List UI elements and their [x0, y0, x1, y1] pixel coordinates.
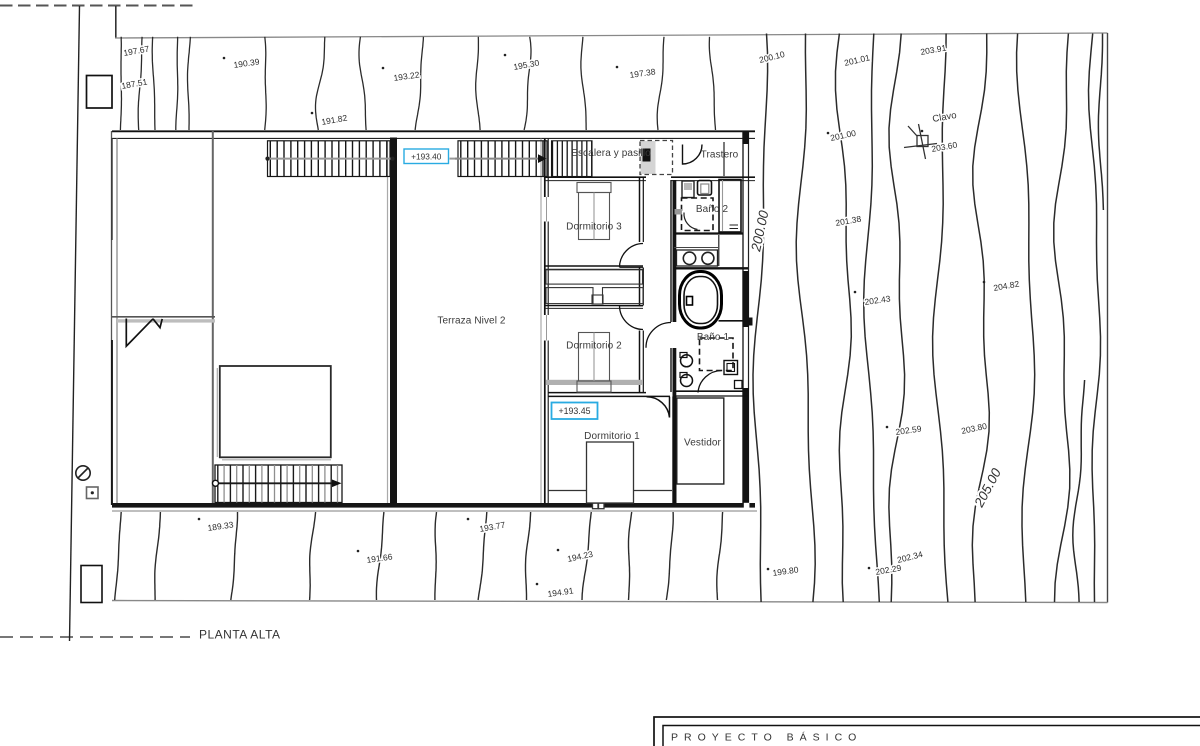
svg-text:Dormitorio 2: Dormitorio 2 [566, 341, 622, 352]
svg-text:PROYECTO BÁSICO: PROYECTO BÁSICO [671, 731, 862, 744]
svg-text:Trastero: Trastero [701, 150, 739, 161]
svg-text:Baño 1: Baño 1 [697, 332, 730, 343]
svg-text:+193.45: +193.45 [558, 406, 590, 416]
svg-text:Escalera y pasillo: Escalera y pasillo [571, 148, 651, 159]
svg-text:Dormitorio 1: Dormitorio 1 [584, 431, 640, 442]
svg-text:Dormitorio 3: Dormitorio 3 [566, 222, 622, 233]
svg-text:+193.40: +193.40 [411, 151, 442, 161]
svg-text:Terraza Nivel 2: Terraza Nivel 2 [437, 316, 506, 327]
svg-text:Baño 2: Baño 2 [696, 204, 729, 215]
svg-text:Vestidor: Vestidor [684, 438, 722, 449]
svg-text:PLANTA ALTA: PLANTA ALTA [199, 628, 281, 642]
